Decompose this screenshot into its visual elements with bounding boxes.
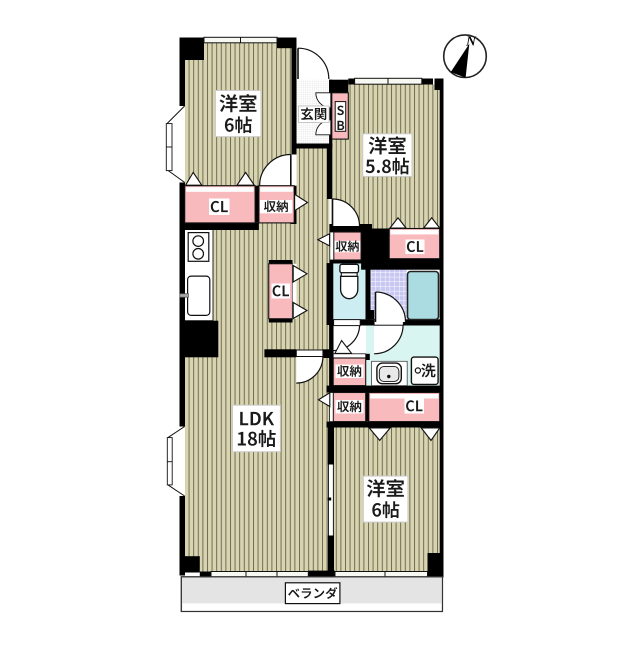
svg-text:N: N [465, 34, 477, 49]
